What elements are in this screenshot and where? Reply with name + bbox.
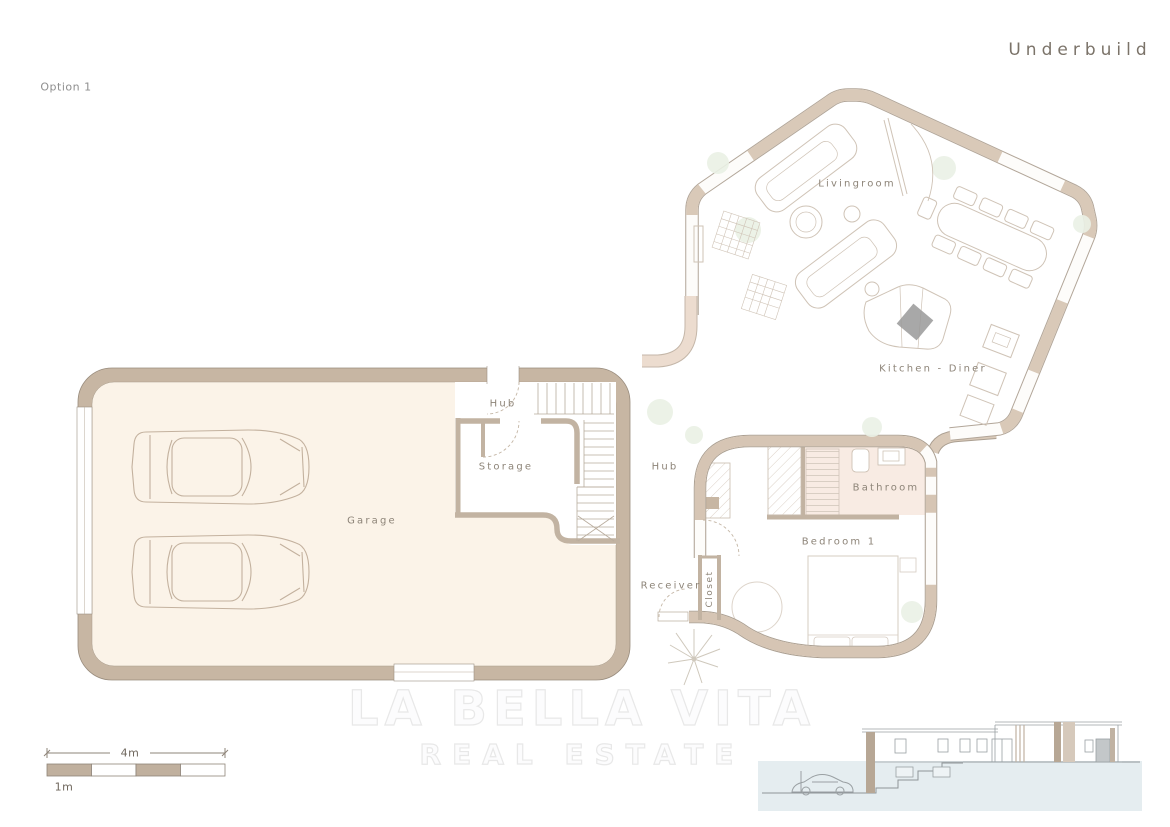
- floor-plan-drawing: [0, 0, 1170, 827]
- kitchen-counter: [960, 395, 994, 426]
- dining-table: [907, 175, 1058, 291]
- entry-step: [658, 612, 688, 621]
- drawing-title: Underbuild: [1008, 40, 1151, 60]
- room-label-hub-garage: Hub: [490, 399, 517, 410]
- upper-building-walls: [642, 95, 1091, 452]
- toilet: [852, 449, 869, 472]
- hub-door-opening: [487, 366, 519, 384]
- side-table: [844, 206, 860, 222]
- sofa: [750, 119, 862, 217]
- scale-unit-label: 1m: [55, 781, 74, 794]
- room-label-kitchen-diner: Kitchen - Diner: [879, 364, 987, 375]
- shower: [806, 449, 839, 515]
- wardrobe: [768, 445, 801, 515]
- room-label-hub-main: Hub: [652, 462, 679, 473]
- bedroom-suite: [658, 441, 931, 653]
- side-table: [865, 282, 879, 296]
- room-label-bathroom: Bathroom: [853, 483, 920, 494]
- bedside-table: [900, 558, 916, 572]
- room-label-bedroom1: Bedroom 1: [802, 537, 877, 548]
- room-label-livingroom: Livingroom: [818, 179, 896, 190]
- scale-total-label: 4m: [116, 747, 145, 760]
- bathroom-sink: [878, 448, 905, 465]
- kitchen-counter: [983, 324, 1020, 357]
- sofa: [790, 215, 902, 314]
- bed: [808, 556, 898, 653]
- room-label-receiver: Receiver: [641, 581, 702, 592]
- palm-tree: [668, 629, 720, 685]
- garage-window-bottom: [394, 664, 474, 681]
- room-label-storage: Storage: [479, 462, 534, 473]
- option-label: Option 1: [40, 81, 91, 94]
- cooktop: [897, 304, 934, 341]
- rug: [741, 274, 786, 319]
- floor-plan-page: LA BELLA VITA REAL ESTATE Underbuild Opt…: [0, 0, 1170, 827]
- elevation-drawing: [758, 722, 1142, 811]
- room-label-closet: Closet: [705, 570, 715, 607]
- armchair: [790, 206, 822, 238]
- room-label-garage: Garage: [347, 516, 397, 527]
- elevation-pillar: [866, 732, 875, 793]
